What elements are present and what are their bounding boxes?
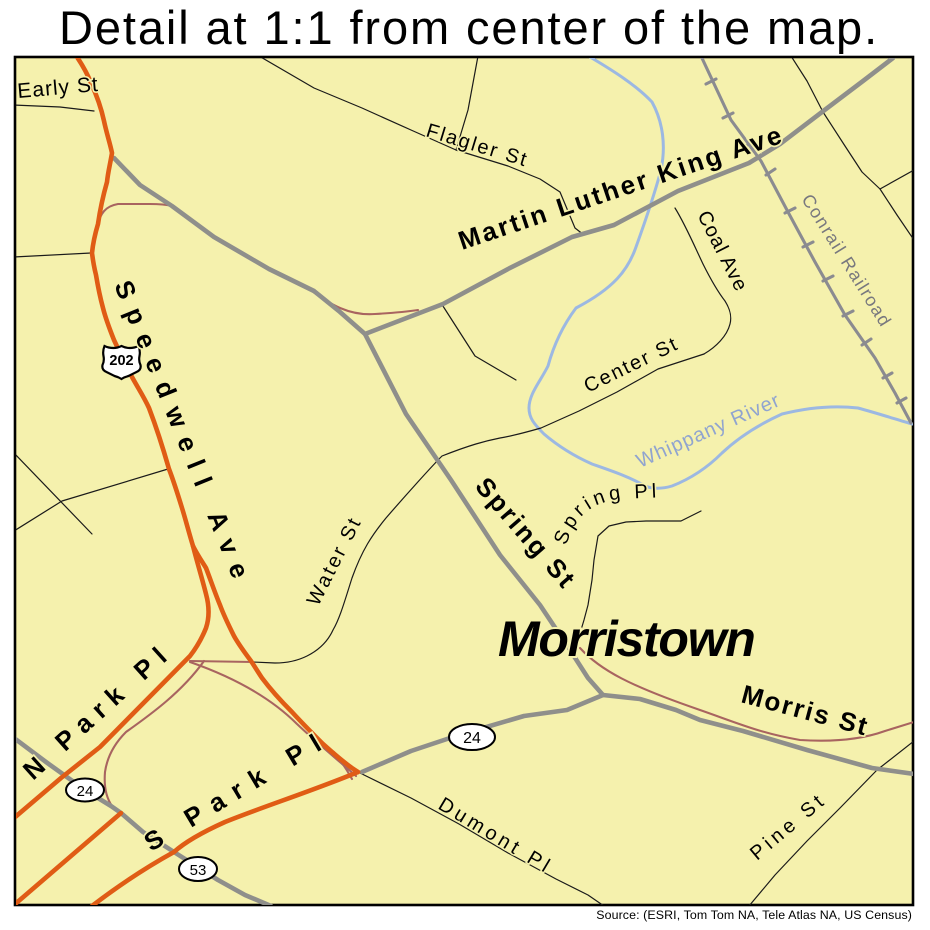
svg-text:Morristown: Morristown (498, 611, 754, 667)
svg-text:Source: (ESRI, Tom Tom NA, Tel: Source: (ESRI, Tom Tom NA, Tele Atlas NA… (596, 908, 912, 922)
svg-text:202: 202 (109, 353, 133, 369)
svg-text:24: 24 (463, 730, 481, 747)
svg-text:Detail at 1:1 from center of t: Detail at 1:1 from center of the map. (59, 1, 879, 54)
svg-text:53: 53 (190, 862, 207, 879)
svg-text:24: 24 (77, 783, 94, 800)
